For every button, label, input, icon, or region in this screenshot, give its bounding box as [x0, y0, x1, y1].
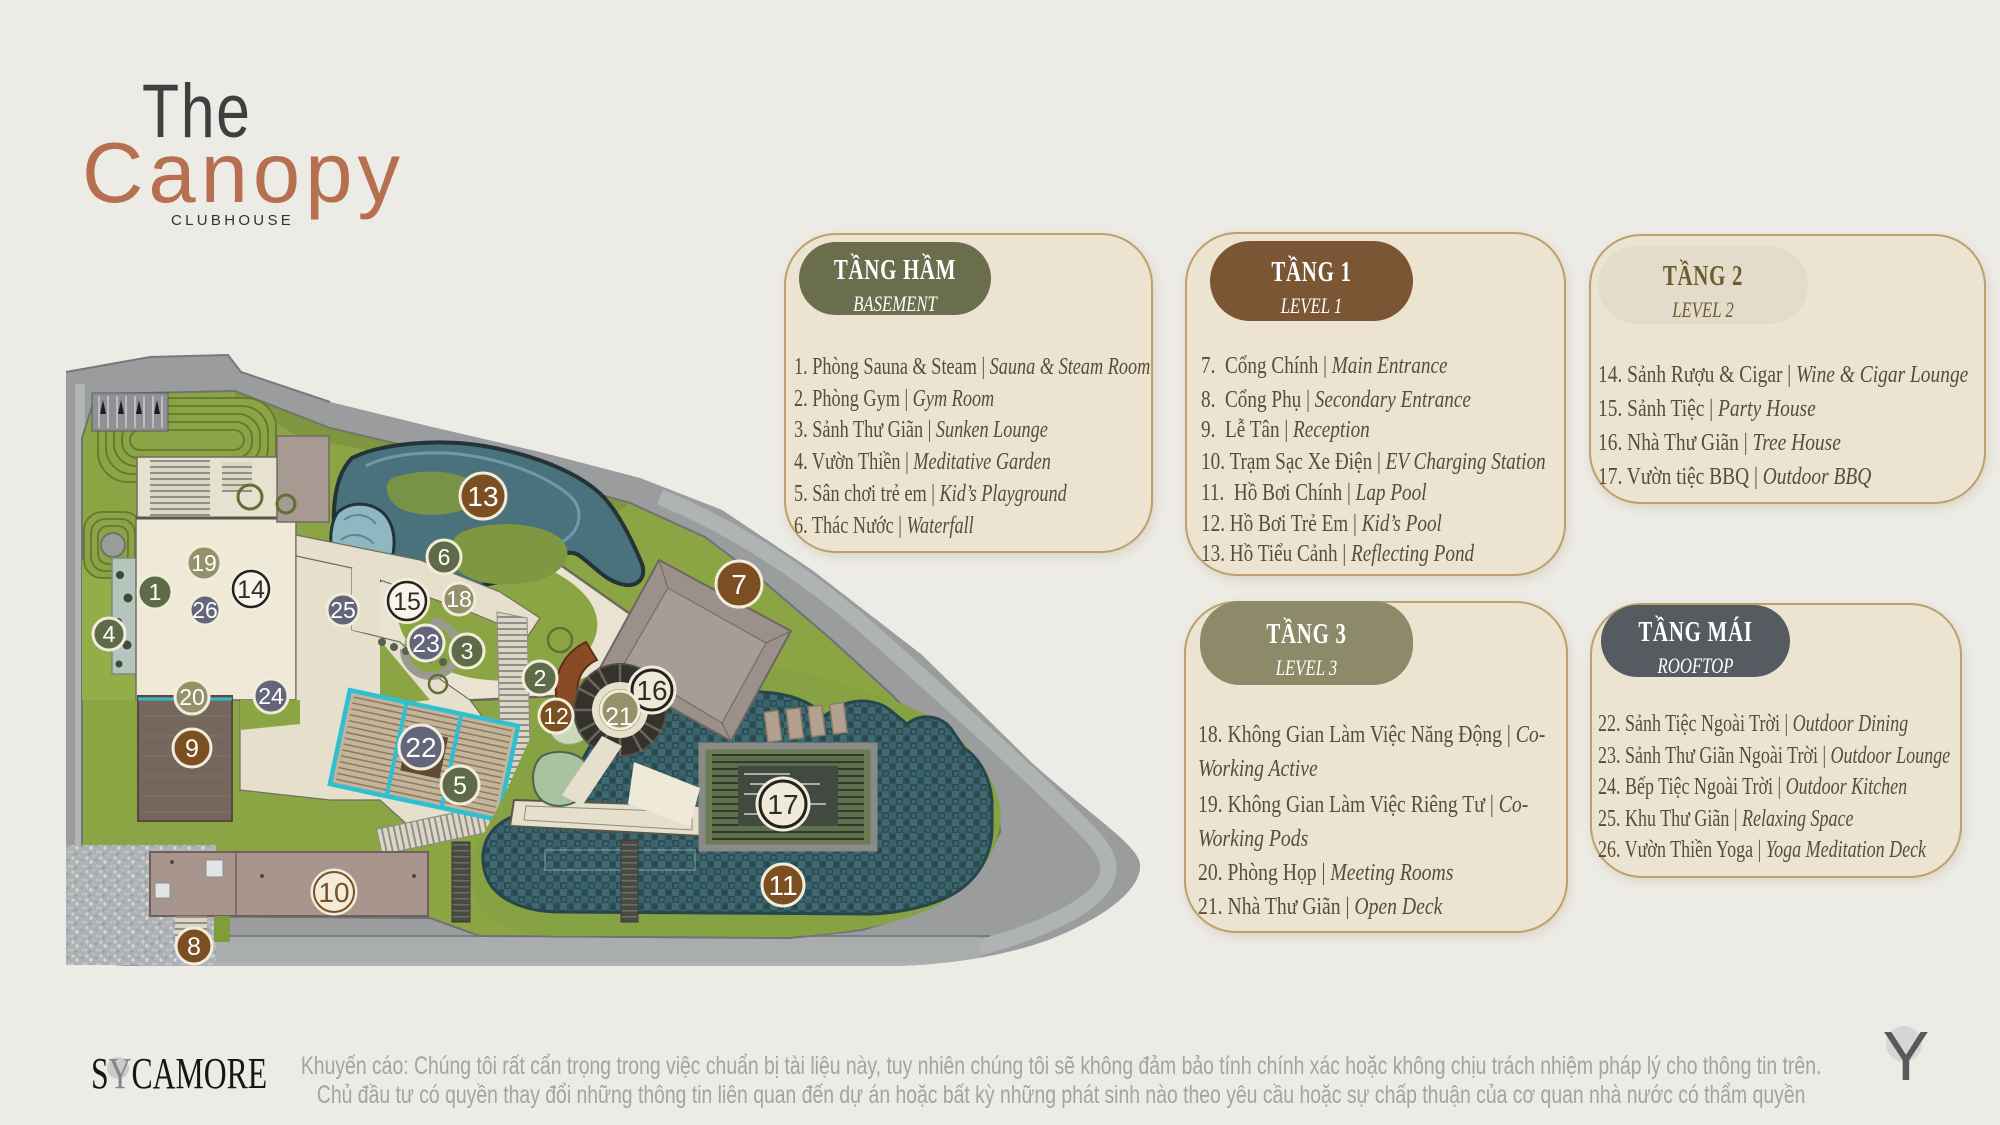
svg-text:11: 11: [768, 870, 797, 901]
svg-text:14: 14: [237, 576, 265, 604]
svg-text:9: 9: [185, 735, 199, 763]
svg-text:2: 2: [534, 665, 547, 691]
svg-text:7: 7: [731, 569, 747, 600]
svg-text:6: 6: [438, 544, 451, 570]
svg-text:15: 15: [393, 588, 421, 616]
svg-text:4: 4: [103, 621, 116, 647]
svg-text:20: 20: [179, 684, 205, 710]
svg-text:22: 22: [405, 732, 436, 763]
svg-text:10: 10: [318, 877, 349, 908]
svg-text:17: 17: [767, 789, 798, 820]
svg-text:24: 24: [258, 683, 284, 709]
svg-text:1: 1: [149, 579, 162, 605]
svg-text:3: 3: [461, 638, 474, 664]
svg-text:5: 5: [453, 772, 467, 800]
svg-text:12: 12: [543, 703, 569, 729]
svg-text:8: 8: [187, 933, 201, 961]
svg-text:21: 21: [605, 703, 633, 731]
svg-text:23: 23: [412, 630, 440, 658]
svg-text:18: 18: [446, 586, 472, 612]
svg-text:13: 13: [467, 481, 498, 512]
svg-text:19: 19: [191, 550, 217, 576]
svg-text:26: 26: [192, 597, 218, 623]
svg-text:16: 16: [636, 675, 667, 706]
svg-text:25: 25: [330, 597, 356, 623]
